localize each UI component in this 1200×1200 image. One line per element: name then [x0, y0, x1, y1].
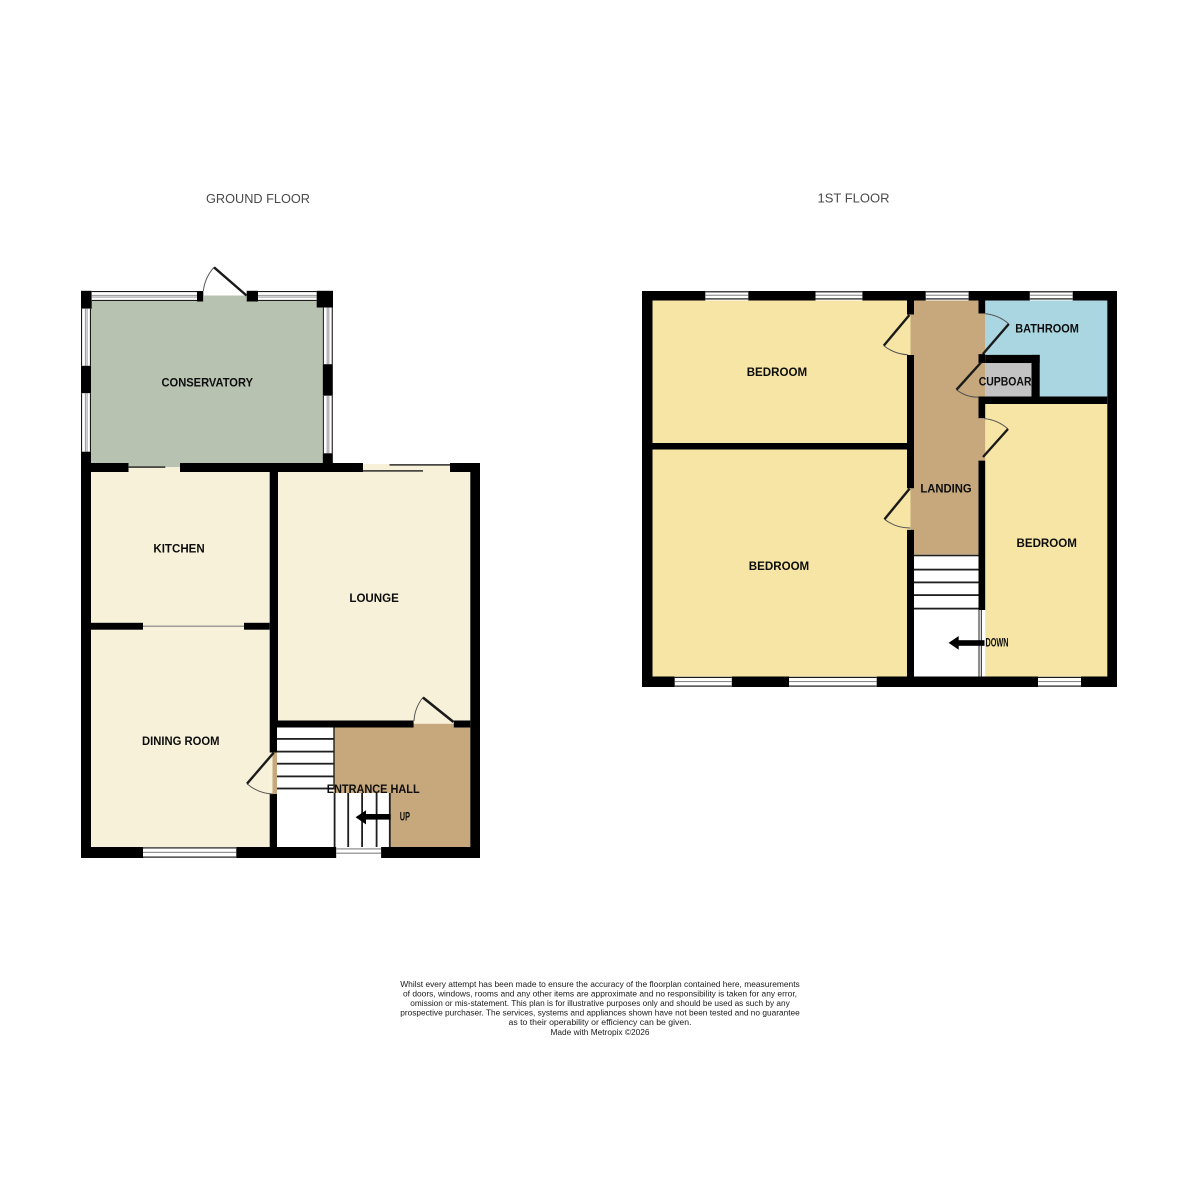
svg-text:CONSERVATORY: CONSERVATORY [162, 376, 254, 390]
svg-text:BEDROOM: BEDROOM [747, 365, 807, 379]
svg-text:Made with Metropix ©2026: Made with Metropix ©2026 [551, 1027, 650, 1037]
svg-text:CUPBOAR: CUPBOAR [979, 376, 1032, 388]
svg-text:prospective purchaser. The ser: prospective purchaser. The services, sys… [400, 1008, 800, 1018]
svg-text:KITCHEN: KITCHEN [153, 541, 204, 555]
svg-text:LOUNGE: LOUNGE [349, 591, 398, 605]
svg-text:DINING ROOM: DINING ROOM [142, 734, 220, 748]
svg-text:BEDROOM: BEDROOM [749, 559, 809, 573]
svg-text:UP: UP [400, 810, 410, 824]
svg-text:DOWN: DOWN [986, 636, 1009, 650]
svg-text:of doors, windows, rooms and a: of doors, windows, rooms and any other i… [403, 988, 797, 998]
svg-text:GROUND FLOOR: GROUND FLOOR [206, 191, 310, 206]
svg-text:LANDING: LANDING [920, 483, 971, 495]
svg-text:omission or mis-statement. Thi: omission or mis-statement. This plan is … [410, 998, 790, 1008]
svg-text:ENTRANCE HALL: ENTRANCE HALL [327, 782, 420, 796]
svg-text:Whilst every attempt has been: Whilst every attempt has been made to en… [400, 979, 800, 989]
svg-text:BEDROOM: BEDROOM [1017, 536, 1077, 550]
svg-text:as to their operability or eff: as to their operability or efficiency ca… [509, 1017, 692, 1027]
svg-text:1ST FLOOR: 1ST FLOOR [818, 191, 890, 206]
svg-text:BATHROOM: BATHROOM [1015, 321, 1079, 335]
